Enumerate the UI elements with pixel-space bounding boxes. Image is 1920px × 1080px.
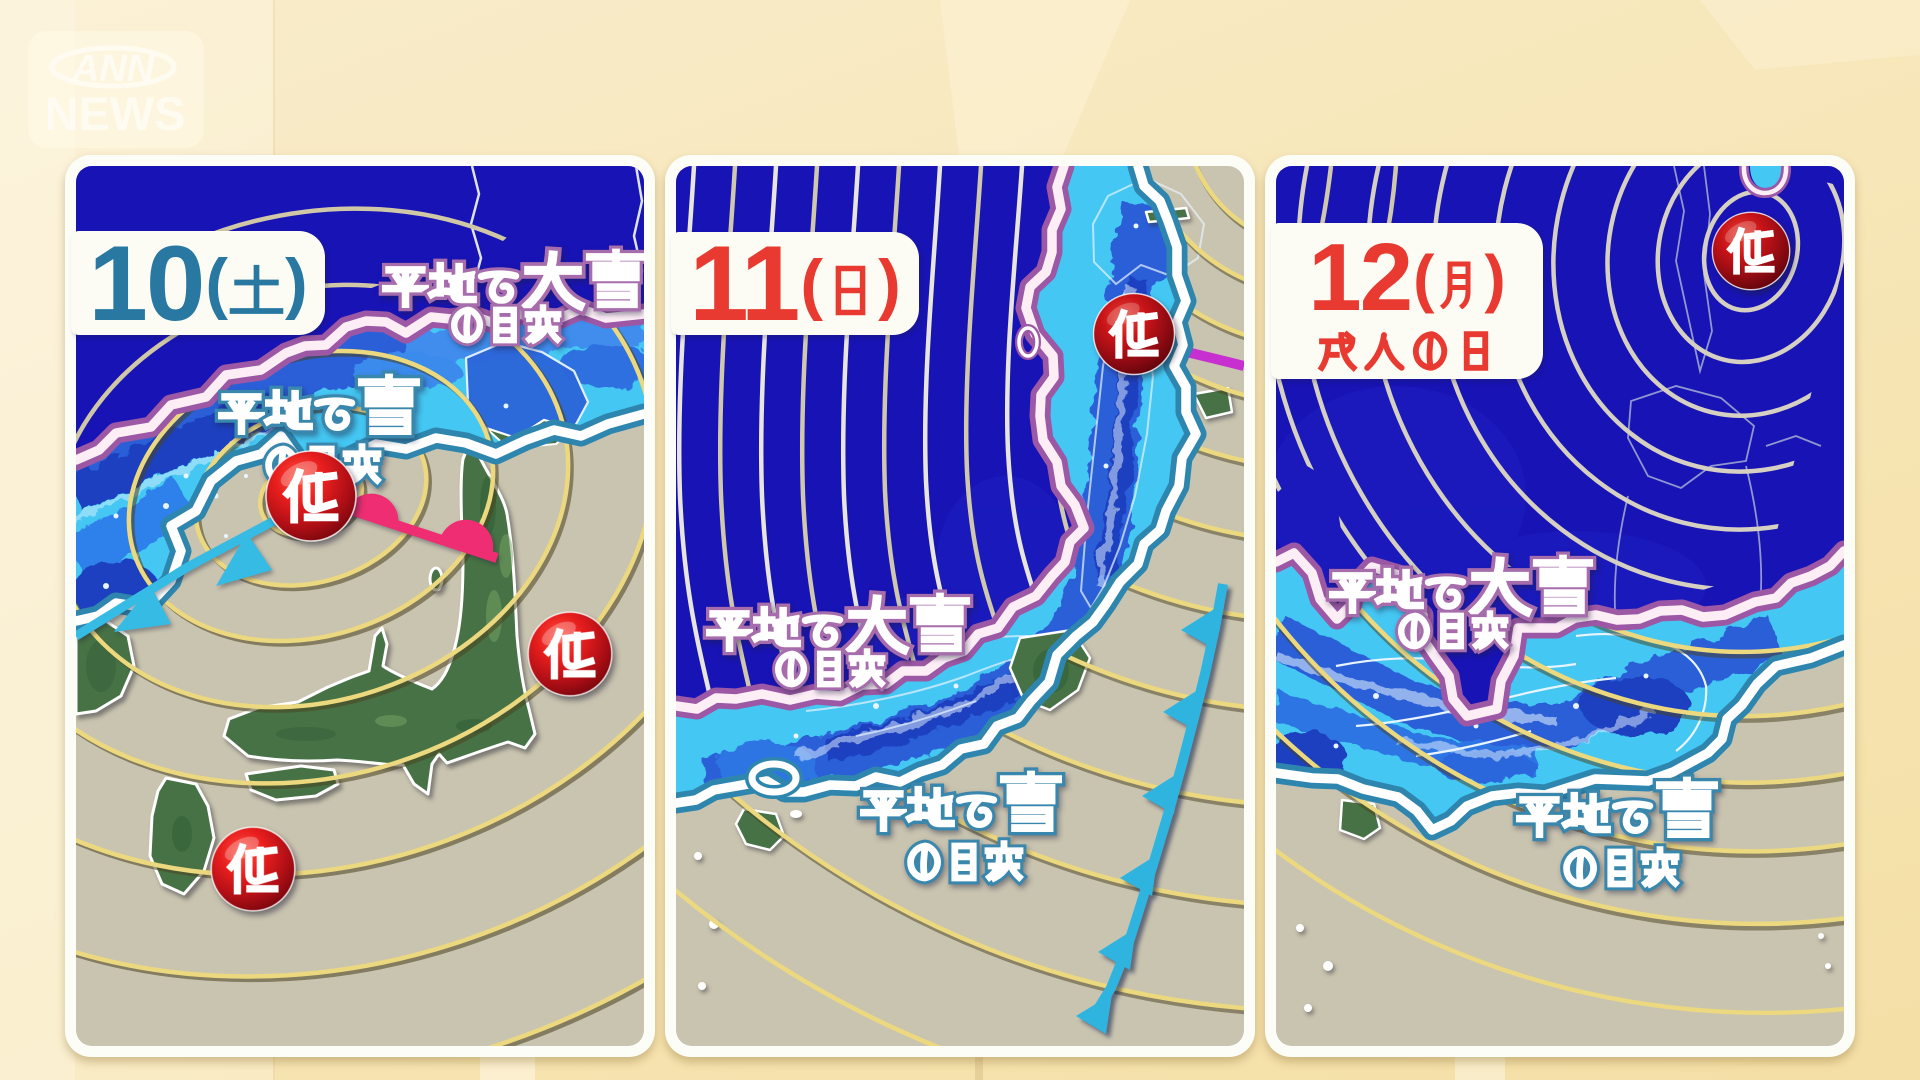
svg-text:ANN: ANN bbox=[71, 48, 156, 90]
svg-text:NEWS: NEWS bbox=[45, 87, 186, 140]
